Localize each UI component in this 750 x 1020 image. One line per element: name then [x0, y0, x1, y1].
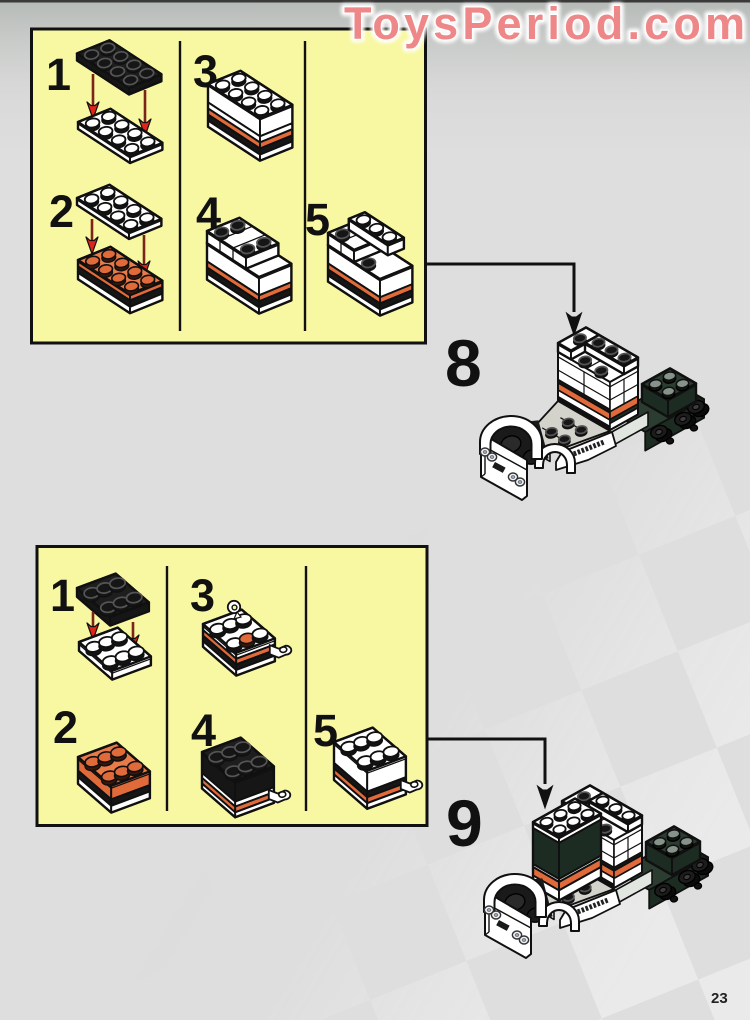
svg-text:23: 23 [711, 990, 728, 1007]
svg-text:2: 2 [49, 186, 74, 237]
svg-text:1: 1 [50, 570, 75, 621]
svg-text:8: 8 [445, 326, 482, 400]
svg-text:3: 3 [190, 570, 215, 621]
svg-text:9: 9 [446, 786, 483, 860]
svg-text:1: 1 [46, 49, 71, 100]
svg-text:2: 2 [53, 702, 78, 753]
svg-text:5: 5 [305, 194, 330, 245]
